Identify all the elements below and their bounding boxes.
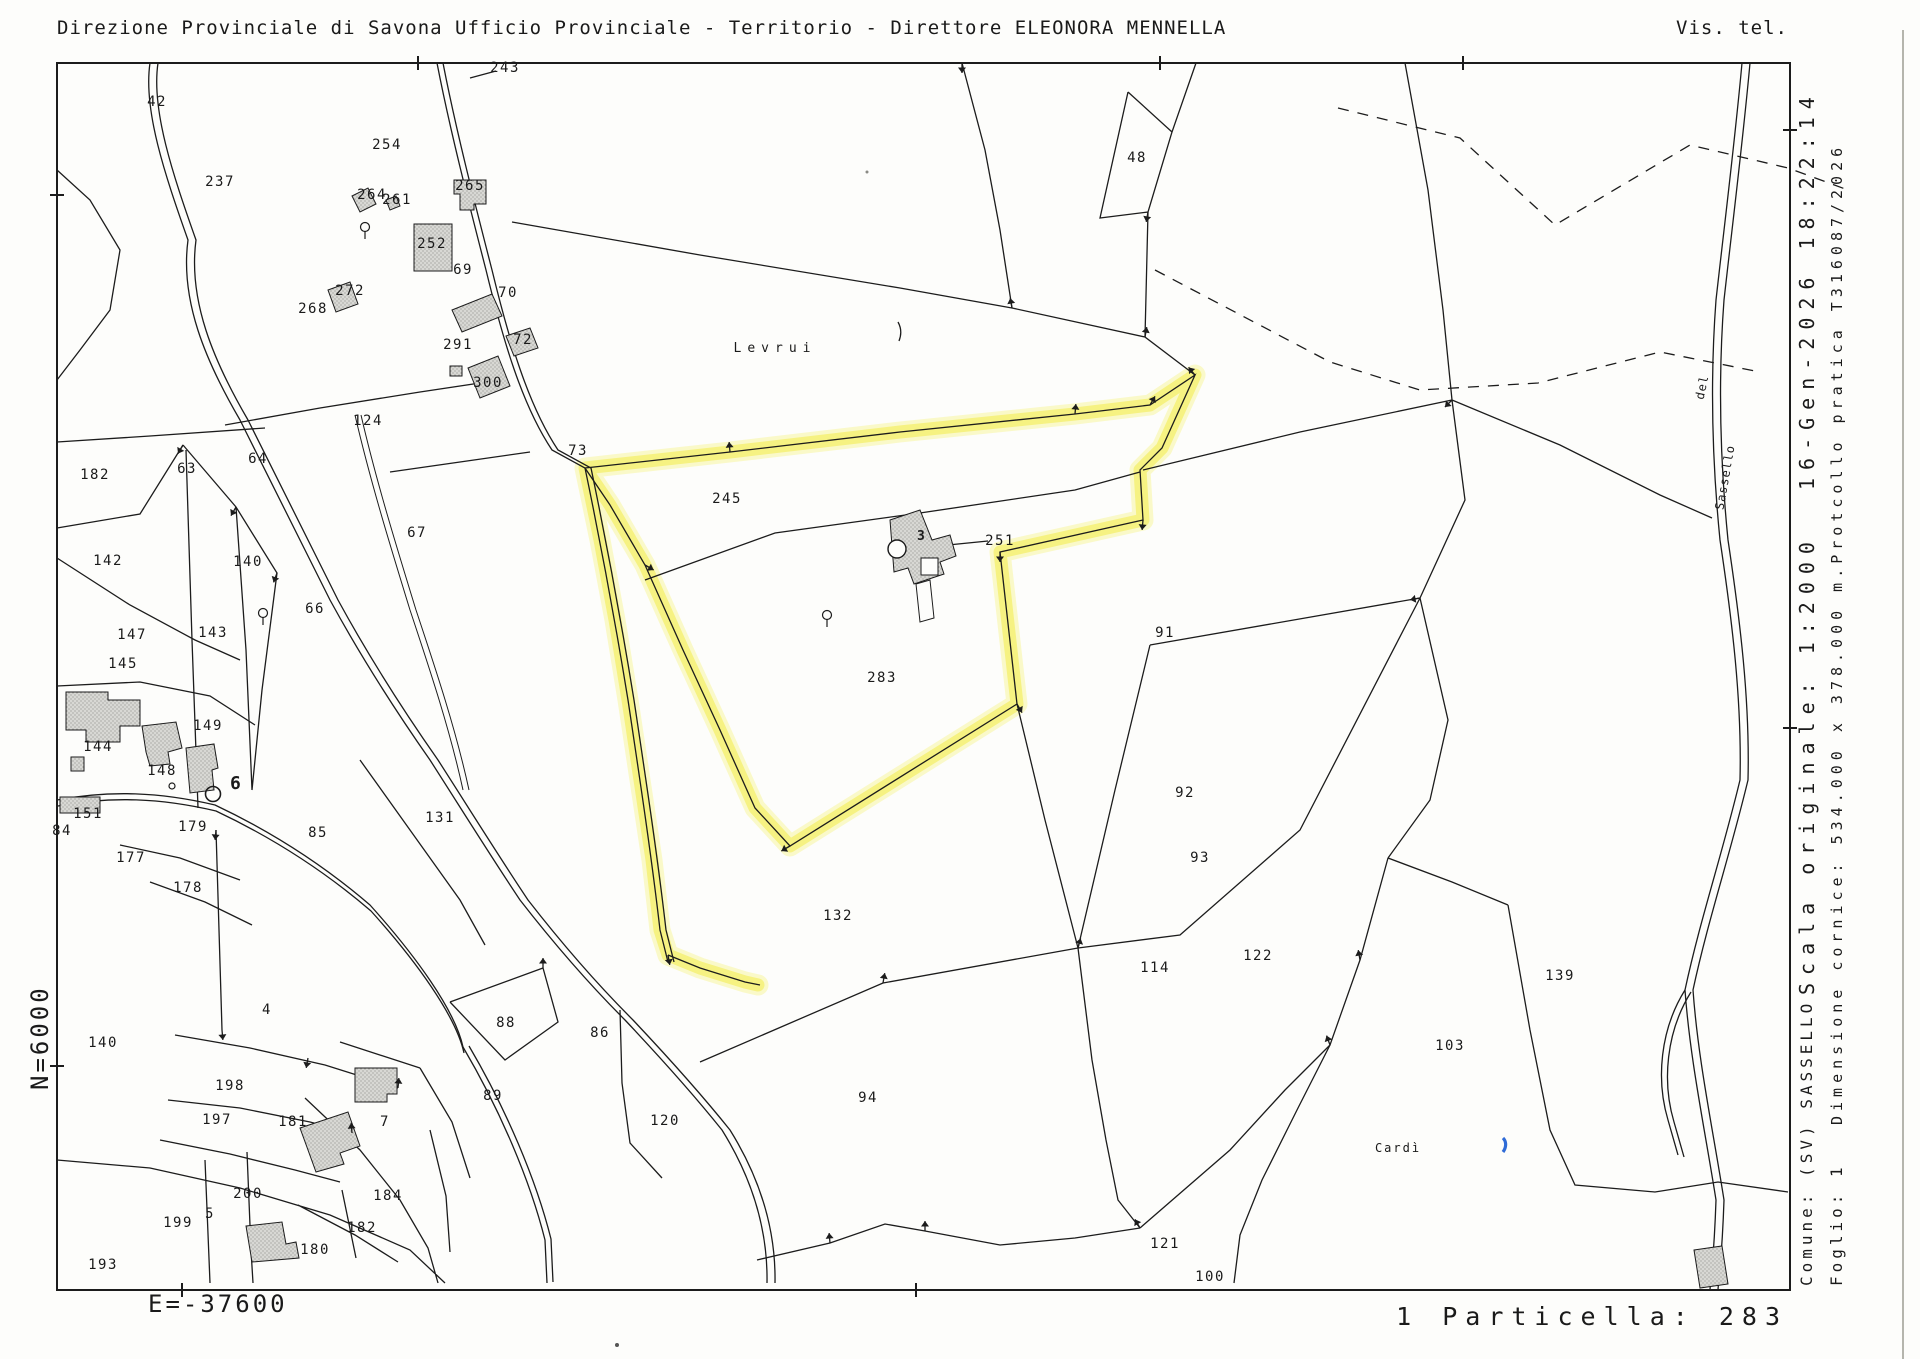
parcel-label-200: 200 (233, 1186, 263, 1202)
tree-symbol (361, 223, 370, 240)
parcel-label-7: 7 (380, 1114, 390, 1130)
boundary-flag-icon (539, 958, 547, 968)
boundary-flag-icon (175, 443, 187, 456)
parcel-label-132: 132 (823, 908, 853, 924)
frame-size-label: Dimensione cornice: 534.000 x 378.000 m.… (1828, 143, 1846, 1125)
parcel-label-265: 265 (455, 178, 485, 194)
parcel-label-272: 272 (335, 283, 365, 299)
road-del-sassello (1661, 63, 1750, 1290)
parcel-label-86: 86 (590, 1025, 610, 1041)
parcel-label-63: 63 (177, 461, 197, 477)
parcel-label-243: 243 (490, 60, 520, 76)
parcel-label-182: 182 (347, 1220, 377, 1236)
building-251 (888, 510, 956, 622)
parcel-label-198: 198 (215, 1078, 245, 1094)
road-northwest-winding (149, 63, 775, 1283)
building (1694, 1246, 1728, 1288)
parcel-label-124: 124 (353, 413, 383, 429)
small-point (169, 783, 175, 789)
parcel-label-140: 140 (88, 1035, 118, 1051)
parcel-label-237: 237 (205, 174, 235, 190)
parcel-label-4: 4 (262, 1002, 272, 1018)
parcel-label-199: 199 (163, 1215, 193, 1231)
boundary-flag-icon (921, 1221, 929, 1231)
parcel-label-72: 72 (513, 332, 533, 348)
parcel-label-48: 48 (1127, 150, 1147, 166)
header-title: Direzione Provinciale di Savona Ufficio … (57, 17, 1226, 39)
parcel-label-245: 245 (712, 491, 742, 507)
place-label: Cardì (1375, 1141, 1421, 1155)
parcel-label-197: 197 (202, 1112, 232, 1128)
parcel-label-85: 85 (308, 825, 328, 841)
parcel-label-184: 184 (373, 1188, 403, 1204)
boundary-flag-icon (211, 830, 220, 841)
fiducial-point-number: 6 (230, 773, 241, 794)
place-label: Levrui (734, 341, 817, 356)
particella-selection-label: 1 Particella: 283 (1396, 1302, 1788, 1331)
parcel-label-94: 94 (858, 1090, 878, 1106)
building (300, 1112, 360, 1172)
parcel-label-179: 179 (178, 819, 208, 835)
datetime-label: 16-Gen-2026 18:22:14 (1795, 89, 1819, 490)
parcel-label-131: 131 (425, 810, 455, 826)
parcel-label-121: 121 (1150, 1236, 1180, 1252)
parcel-label-70: 70 (498, 285, 518, 301)
parcel-label-252: 252 (417, 236, 447, 252)
boundary-flag-icon (302, 1057, 312, 1068)
parcel-label-268: 268 (298, 301, 328, 317)
building (71, 757, 84, 771)
map-frame (50, 56, 1797, 1297)
parcel-label-145: 145 (108, 656, 138, 672)
road-west (57, 794, 553, 1283)
parcel-label-67: 67 (407, 525, 427, 541)
building (452, 294, 502, 332)
building (246, 1222, 299, 1262)
building (355, 1068, 397, 1102)
parcel-label-177: 177 (116, 850, 146, 866)
dashed-paths (1155, 108, 1848, 390)
comune-label: Comune: (SV) SASSELLO (1797, 1000, 1816, 1286)
tree-symbol (823, 611, 832, 628)
parcel-label-73: 73 (568, 443, 588, 459)
parcel-label-193: 193 (88, 1257, 118, 1273)
parcel-label-92: 92 (1175, 785, 1195, 801)
north-coordinate-label: N=6000 (26, 985, 54, 1090)
cadastral-map: Direzione Provinciale di Savona Ufficio … (0, 0, 1920, 1359)
map-symbols (169, 223, 1506, 1153)
boundary-markers (175, 63, 1455, 1243)
boundary-flag-icon (218, 1030, 227, 1041)
parcel-label-66: 66 (305, 601, 325, 617)
parcel-label-120: 120 (650, 1113, 680, 1129)
header-vis-tel: Vis. tel. (1676, 17, 1788, 39)
parcel-label-122: 122 (1243, 948, 1273, 964)
parcel-label-283: 283 (867, 670, 897, 686)
roads (57, 63, 1750, 1290)
parcel-label-114: 114 (1140, 960, 1170, 976)
parcel-label-180: 180 (300, 1242, 330, 1258)
parcel-label-100: 100 (1195, 1269, 1225, 1285)
parcel-label-182: 182 (80, 467, 110, 483)
scale-label: Scala originale: 1:2000 (1795, 534, 1819, 995)
parcel-label-143: 143 (198, 625, 228, 641)
parcel-label-149: 149 (193, 718, 223, 734)
parcel-label-147: 147 (117, 627, 147, 643)
parcel-label-300: 300 (473, 375, 503, 391)
parcel-label-88: 88 (496, 1015, 516, 1031)
parcel-label-42: 42 (147, 94, 167, 110)
building (66, 692, 140, 742)
parcel-label-64: 64 (248, 451, 268, 467)
parcel-labels: 4223725426426126525269702722682917230012… (52, 60, 1738, 1285)
building (186, 744, 218, 793)
parcel-label-254: 254 (372, 137, 402, 153)
parcel-label-89: 89 (483, 1088, 503, 1104)
parcel-label-93: 93 (1190, 850, 1210, 866)
parcel-label-144: 144 (83, 739, 113, 755)
tree-symbol (259, 609, 268, 626)
parcel-boundaries (57, 63, 1788, 1283)
parcel-label-91: 91 (1155, 625, 1175, 641)
foglio-label: Foglio: 1 (1827, 1163, 1846, 1286)
parcel-label-261: 261 (382, 192, 412, 208)
parcel-label-148: 148 (147, 763, 177, 779)
parcel-label-178: 178 (173, 880, 203, 896)
frame-ticks (50, 56, 1797, 1297)
building-annotation-number: 3 (917, 529, 925, 544)
parcel-label-140: 140 (233, 554, 263, 570)
parcel-label-84: 84 (52, 823, 72, 839)
building (142, 722, 182, 766)
boundary-flag-icon (228, 505, 240, 518)
blue-pen-mark (1503, 1138, 1506, 1152)
parcel-label-5: 5 (205, 1206, 215, 1222)
parcel-label-151: 151 (73, 806, 103, 822)
parcel-label-69: 69 (453, 262, 473, 278)
parcel-label-251: 251 (985, 533, 1015, 549)
parcel-label-181: 181 (278, 1114, 308, 1130)
building (450, 366, 462, 376)
east-coordinate-label: E=-37600 (148, 1290, 288, 1318)
place-label: Sassello (1712, 444, 1737, 511)
parcel-label-142: 142 (93, 553, 123, 569)
place-label: del (1693, 374, 1712, 401)
parcel-label-291: 291 (443, 337, 473, 353)
parcel-label-103: 103 (1435, 1038, 1465, 1054)
cadastral-map-page: Direzione Provinciale di Savona Ufficio … (0, 0, 1920, 1359)
parcel-label-139: 139 (1545, 968, 1575, 984)
